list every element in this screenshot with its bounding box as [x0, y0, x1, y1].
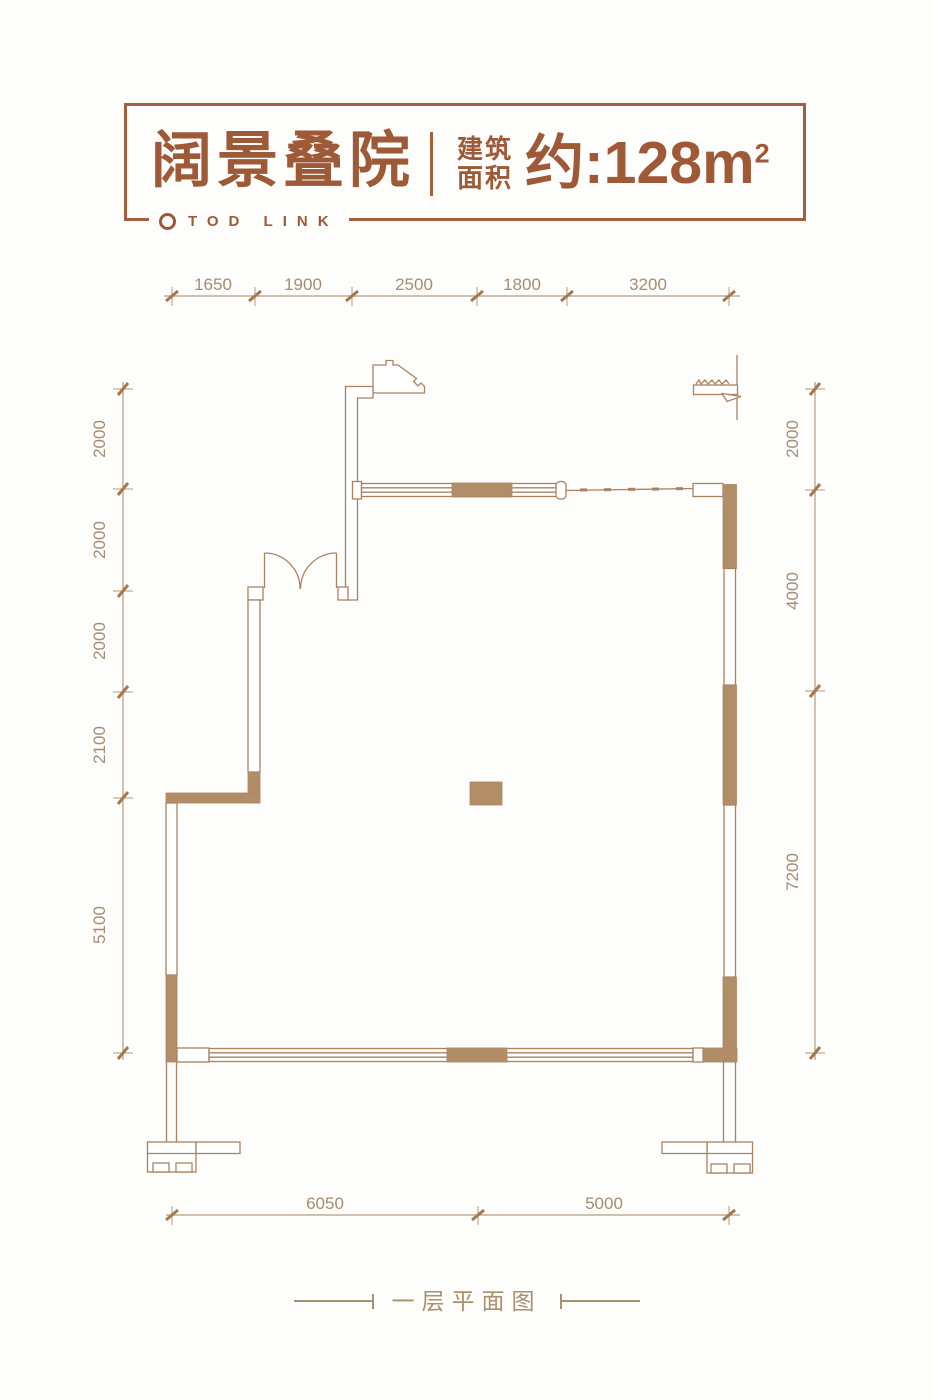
- caption-text: 一层平面图: [392, 1288, 542, 1314]
- door-jamb-right: [338, 587, 348, 600]
- dim-label: 5100: [90, 906, 109, 944]
- column: [470, 782, 502, 805]
- dimension-chain-bottom: 6050 5000: [166, 1194, 740, 1225]
- dim-label: 2100: [90, 726, 109, 764]
- column-footing-right: [662, 1142, 753, 1173]
- caption-line-right: [562, 1300, 640, 1302]
- wall-left: [166, 600, 260, 1062]
- dim-label: 3200: [629, 275, 667, 294]
- dim-label: 4000: [783, 572, 802, 610]
- caption-bar-left: [372, 1294, 374, 1309]
- double-door: [265, 553, 337, 589]
- dimension-chain-left: 2000 2000 2000 2100 5100: [90, 382, 133, 1060]
- stair-section-symbol: [373, 361, 425, 394]
- wall-break-symbol: [694, 355, 742, 420]
- window-bottom: [177, 1048, 737, 1062]
- wall-segment: [452, 483, 512, 497]
- dim-label: 6050: [306, 1194, 344, 1213]
- wall-cap-top-right: [693, 484, 723, 497]
- dim-label: 2000: [90, 521, 109, 559]
- dim-label: 1900: [284, 275, 322, 294]
- dim-label: 2500: [395, 275, 433, 294]
- wall-segment: [447, 1048, 507, 1062]
- floor-plan: 1650 1900 2500 1800 3200 2000 2000 2000 …: [0, 0, 933, 1400]
- dim-label: 7200: [783, 853, 802, 891]
- railing-dashed-line: [566, 489, 693, 491]
- window-top: [353, 482, 567, 500]
- plan-caption: 一层平面图: [0, 1288, 933, 1314]
- door-jamb-left: [248, 587, 263, 600]
- dim-label: 5000: [585, 1194, 623, 1213]
- wall-right: [723, 485, 737, 1063]
- dim-label: 2000: [90, 622, 109, 660]
- window-right-lower: [724, 805, 736, 977]
- dimension-chain-top: 1650 1900 2500 1800 3200: [164, 275, 740, 306]
- dim-label: 2000: [783, 420, 802, 458]
- window-right-upper: [724, 569, 736, 686]
- foundation-stubs: [167, 1062, 736, 1142]
- dimension-chain-right: 2000 4000 7200: [783, 382, 825, 1060]
- caption-line-left: [294, 1300, 372, 1302]
- dim-label: 1650: [194, 275, 232, 294]
- wall-corner-bottom-right: [703, 1048, 737, 1062]
- dim-label: 2000: [90, 420, 109, 458]
- dim-label: 1800: [503, 275, 541, 294]
- column-footing-left: [148, 1142, 241, 1172]
